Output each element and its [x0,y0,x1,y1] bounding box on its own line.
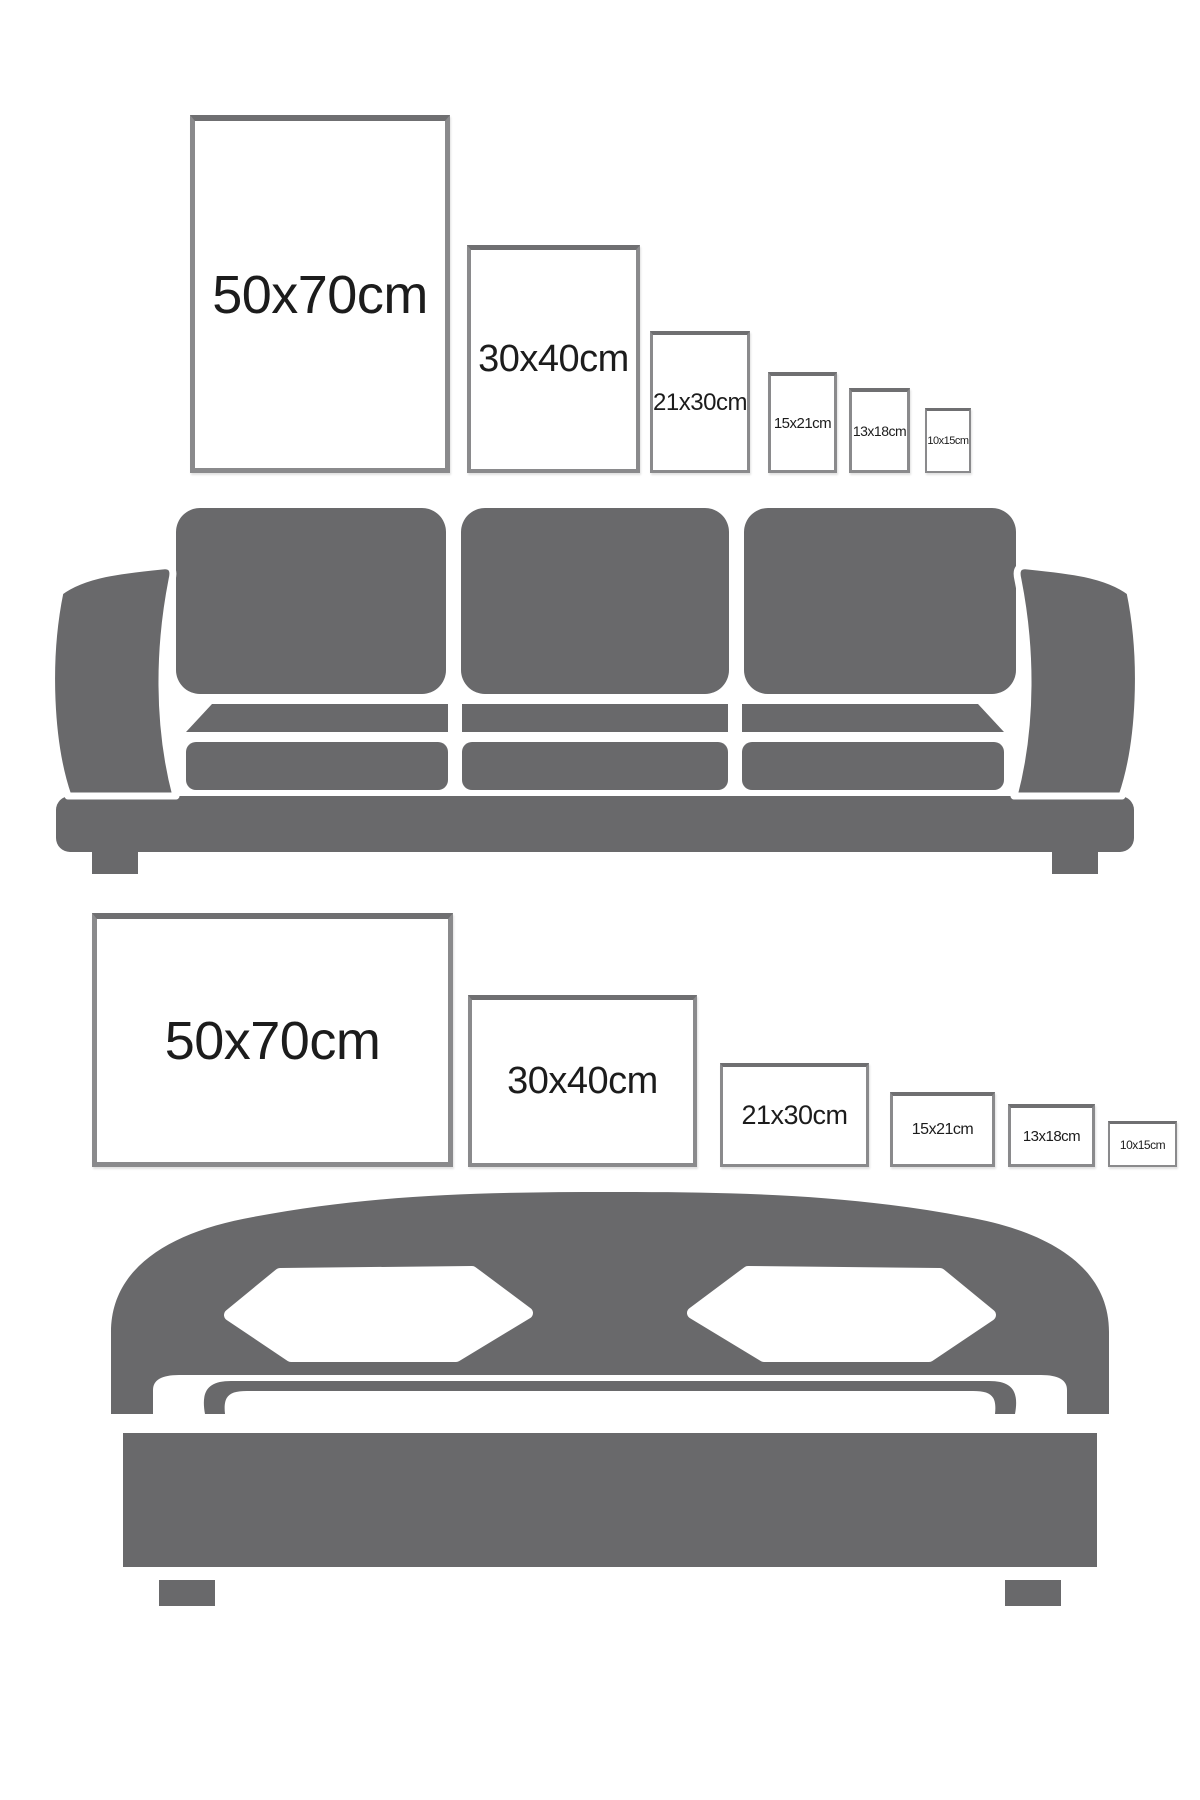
bed-mattress-edge [204,1381,1016,1414]
size-frame-landscape-10x15: 10x15cm [1108,1121,1177,1167]
size-label: 15x21cm [912,1121,973,1139]
size-frame-landscape-30x40: 30x40cm [468,995,697,1167]
bed-right-leg [1005,1580,1061,1606]
poster-size-guide-infographic: 50x70cm 30x40cm 21x30cm 15x21cm 13x18cm … [0,0,1200,1800]
size-label: 30x40cm [507,1060,658,1103]
size-frame-landscape-13x18: 13x18cm [1008,1104,1095,1167]
size-label: 50x70cm [165,1010,381,1072]
size-frame-landscape-50x70: 50x70cm [92,913,453,1167]
size-label: 10x15cm [1120,1138,1165,1152]
bed-left-pillow [230,1272,527,1356]
bed-right-pillow [693,1272,990,1356]
bed-icon [105,1192,1115,1612]
size-label: 13x18cm [1023,1128,1080,1145]
size-frame-landscape-15x21: 15x21cm [890,1092,995,1167]
size-frame-landscape-21x30: 21x30cm [720,1063,869,1167]
bed-base [123,1433,1097,1567]
size-label: 21x30cm [741,1100,847,1131]
bed-scene: 50x70cm 30x40cm 21x30cm 15x21cm 13x18cm … [0,0,1200,1800]
bed-left-leg [159,1580,215,1606]
